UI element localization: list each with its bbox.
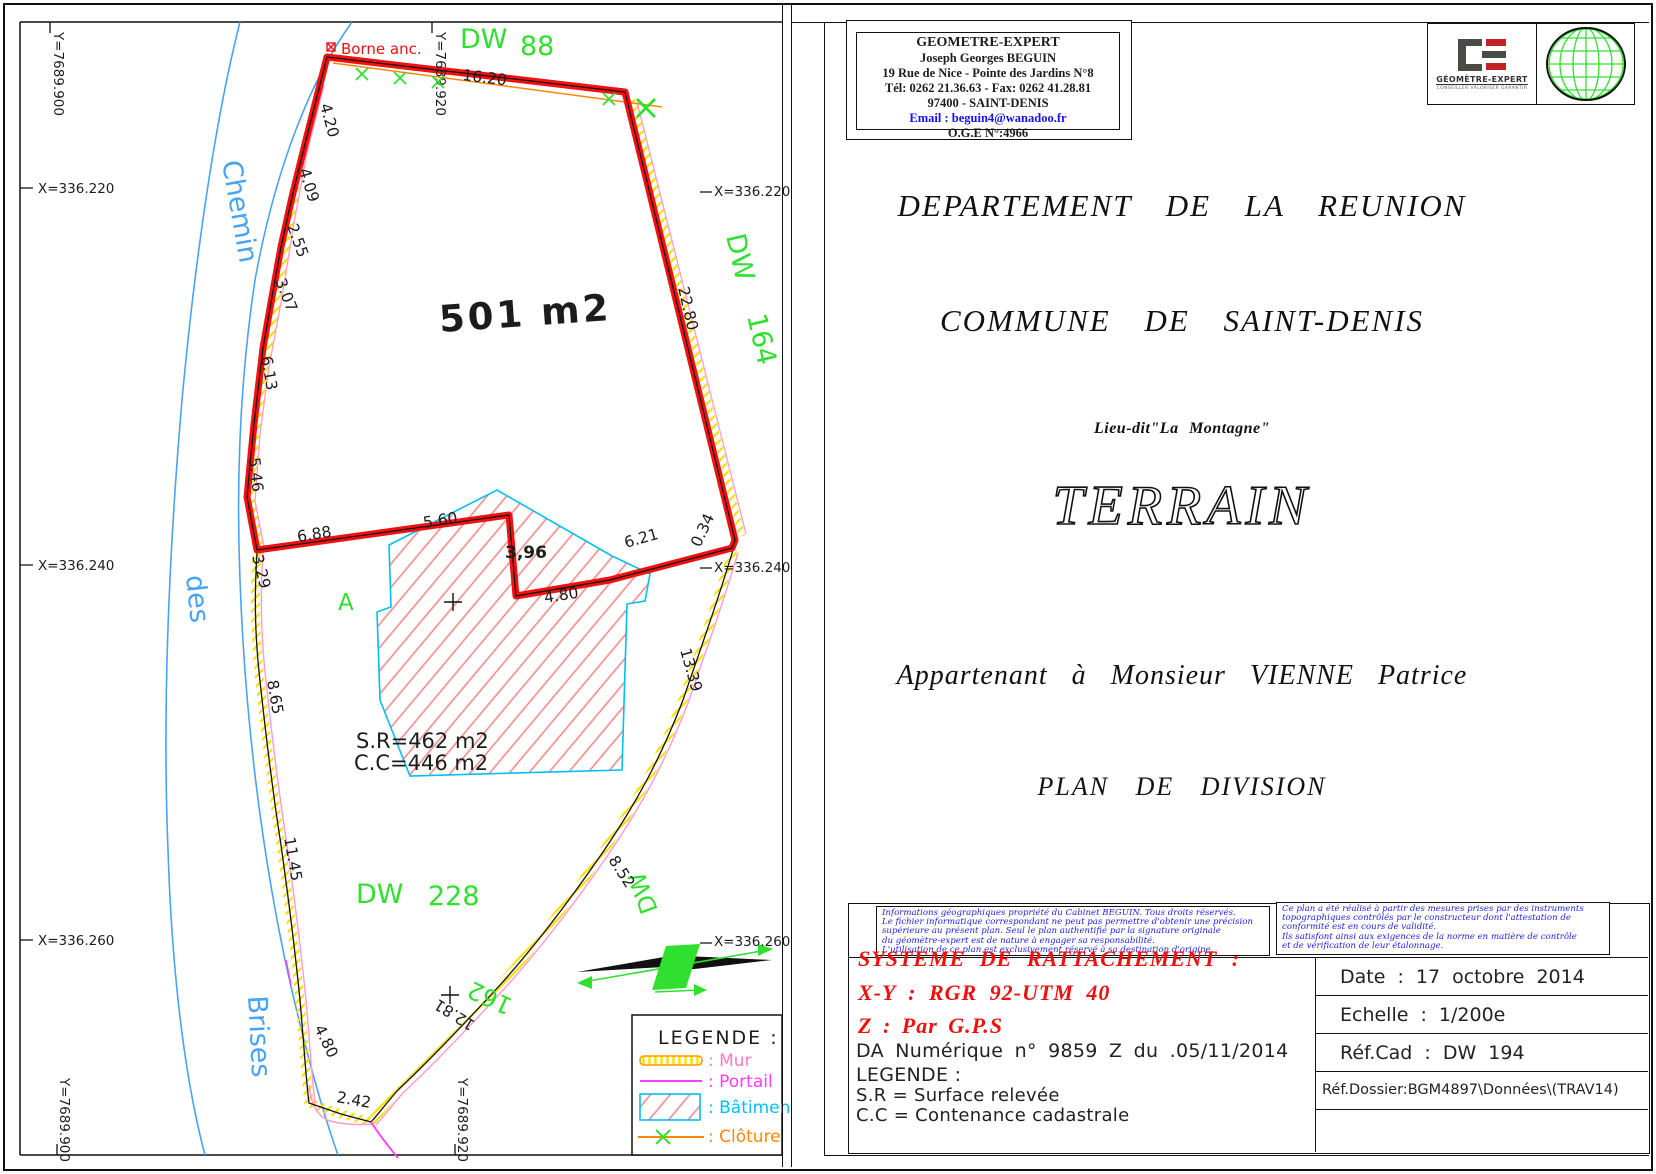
survey-plan-sheet: LEGENDE : : Mur : Portail : Bâtiment : C…	[0, 0, 1656, 1174]
sheet-border	[3, 3, 1653, 1171]
